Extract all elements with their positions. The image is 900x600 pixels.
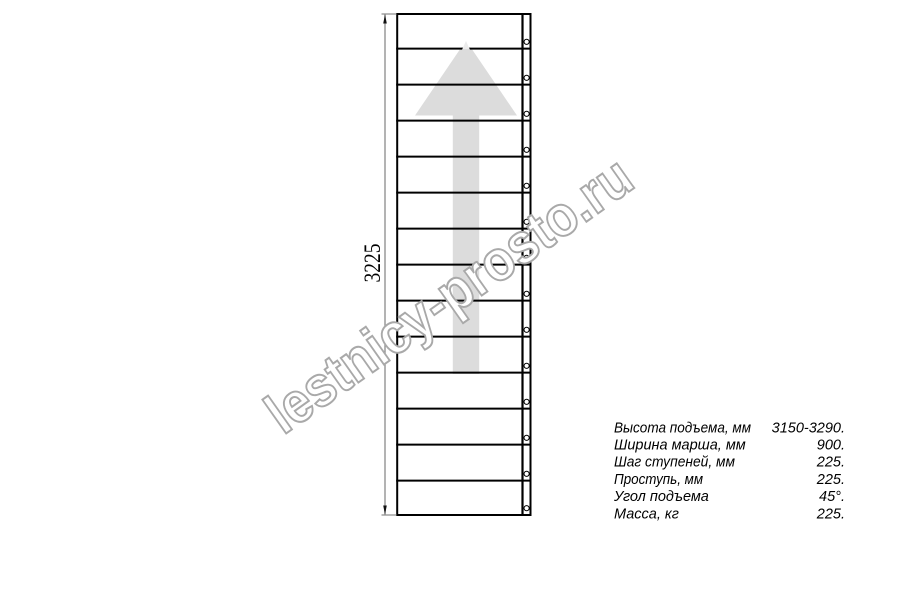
svg-text:Угол подъема: Угол подъема [613,489,709,505]
svg-text:225.: 225. [816,455,845,471]
svg-text:Шаг ступеней, мм: Шаг ступеней, мм [614,455,735,471]
svg-text:225.: 225. [816,472,845,488]
svg-text:Проступь, мм: Проступь, мм [614,472,703,488]
svg-text:Высота подъема, мм: Высота подъема, мм [614,420,751,436]
svg-text:900.: 900. [817,438,845,454]
svg-text:3150-3290.: 3150-3290. [772,420,845,436]
svg-text:225.: 225. [816,506,845,522]
svg-text:3225: 3225 [360,244,385,283]
svg-text:Масса, кг: Масса, кг [614,506,679,522]
svg-text:Ширина марша, мм: Ширина марша, мм [614,438,746,454]
svg-text:45°.: 45°. [819,489,845,505]
